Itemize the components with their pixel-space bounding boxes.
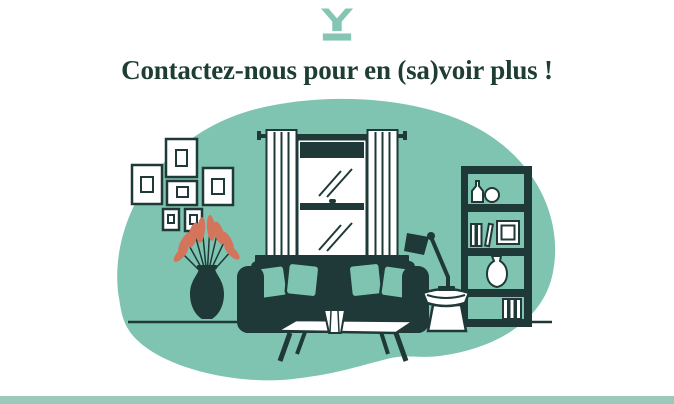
curtain-left [267,130,297,258]
shelf-frame [497,221,519,244]
brand-logo[interactable] [320,8,354,41]
footer-accent-bar [0,396,674,404]
window-with-curtains [255,130,409,264]
curtain-right [368,130,398,258]
contact-section: Contactez-nous pour en (sa)voir plus ! [0,0,674,404]
brand-mark-icon [320,8,354,41]
living-room-illustration [0,0,674,404]
shelf-sphere [485,188,499,202]
